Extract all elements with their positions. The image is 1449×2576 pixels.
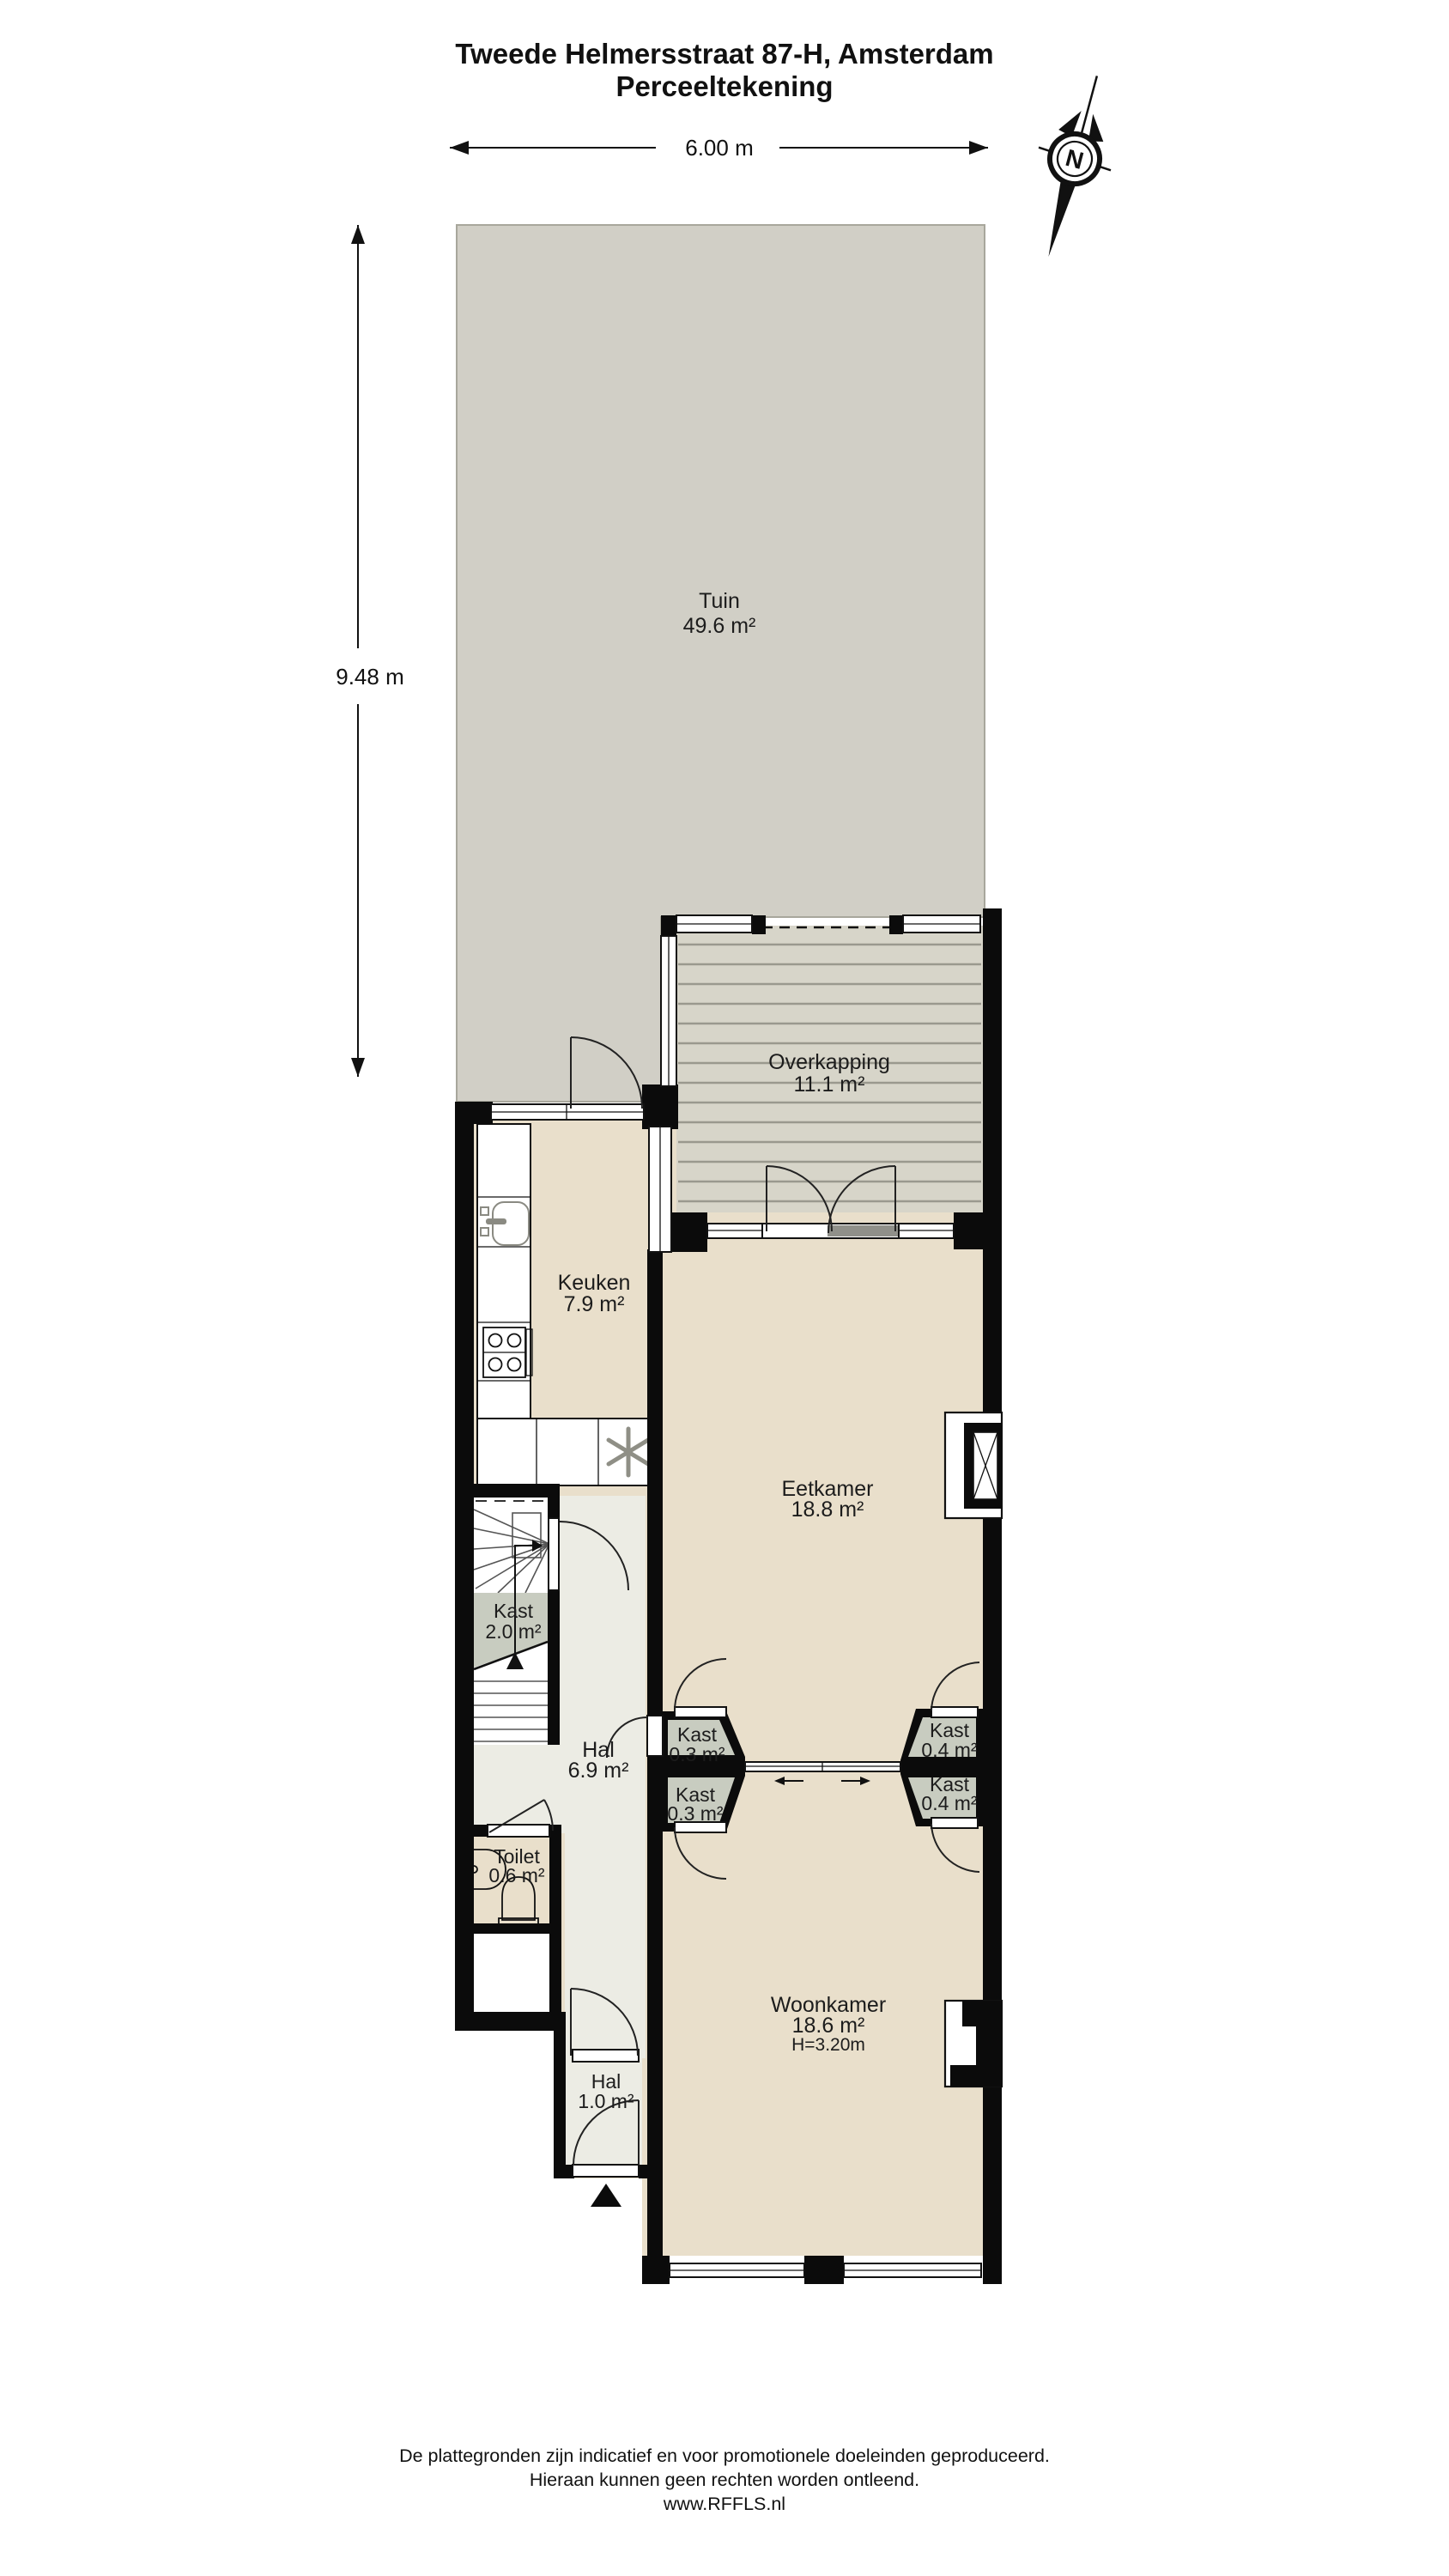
disclaimer: De plattegronden zijn indicatief en voor… [0,2444,1449,2516]
label-tuin-name: Tuin [699,589,740,613]
label-kast-trap-name: Kast [494,1600,534,1622]
height-dimension-label: 9.48 m [336,664,404,690]
label-eetkamer-area: 18.8 m² [791,1498,864,1522]
label-hal-area: 6.9 m² [568,1759,629,1783]
fireplace-woonkamer [945,2001,1002,2087]
label-tuin-area: 49.6 m² [683,614,756,638]
faucet-icon [486,1218,506,1224]
label-kast-rechts-zuid-area: 0.4 m² [921,1792,978,1814]
label-woonkamer-height: H=3.20m [791,2035,865,2055]
label-woonkamer-area: 18.6 m² [792,2014,865,2038]
disclaimer-url: www.RFFLS.nl [0,2492,1449,2516]
disclaimer-line1: De plattegronden zijn indicatief en voor… [0,2444,1449,2468]
label-entree-hal-area: 1.0 m² [578,2090,634,2112]
label-kast-links-zuid-area: 0.3 m² [667,1802,724,1825]
rear-door-mat [828,1225,898,1236]
floorplan-page: Tweede Helmersstraat 87-H, Amsterdam Per… [0,0,1449,2576]
label-toilet-area: 0.6 m² [488,1864,545,1886]
label-kast-trap-area: 2.0 m² [485,1620,542,1643]
floorplan-drawing: 6.00 m 9.48 m N [0,0,1449,2576]
label-keuken-area: 7.9 m² [564,1292,625,1316]
label-overkapping-name: Overkapping [768,1050,890,1074]
meter-niche [474,1934,555,2016]
compass-rose: N [1012,66,1133,266]
label-kast-rechts-noord-area: 0.4 m² [921,1739,978,1761]
label-overkapping-area: 11.1 m² [794,1072,865,1097]
label-keuken-name: Keuken [558,1271,631,1295]
entrance-arrow-icon [591,2184,621,2207]
label-kast-links-noord-area: 0.3 m² [669,1743,725,1765]
disclaimer-line2: Hieraan kunnen geen rechten worden ontle… [0,2468,1449,2492]
width-dimension-label: 6.00 m [685,135,754,161]
width-dimension: 6.00 m [450,135,988,161]
height-dimension: 9.48 m [336,225,404,1077]
fireplace-eetkamer [945,1413,1002,1518]
